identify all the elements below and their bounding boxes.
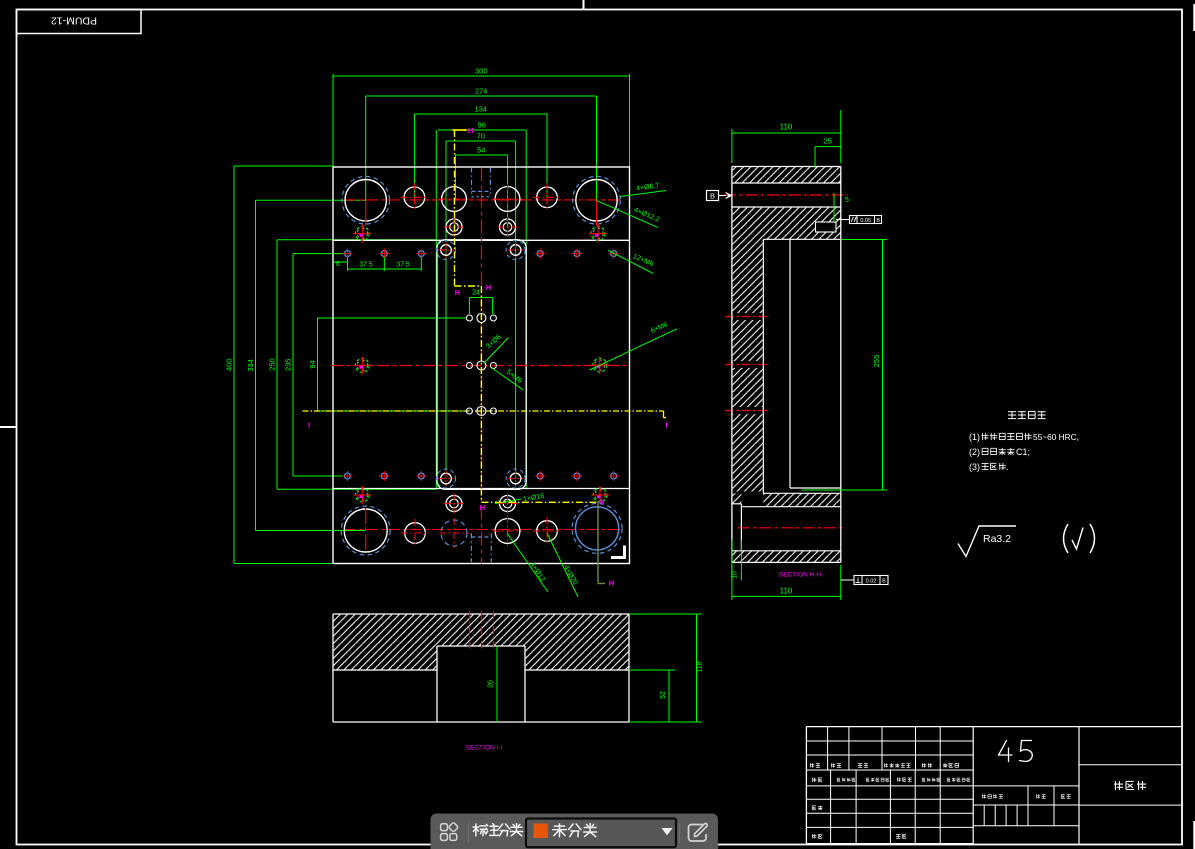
svg-text:110: 110 — [780, 587, 793, 596]
svg-text:400: 400 — [225, 358, 234, 371]
svg-text:Ra3.2: Ra3.2 — [983, 533, 1011, 545]
svg-text:235: 235 — [284, 359, 293, 372]
svg-text:H: H — [599, 500, 604, 507]
svg-text:55~60 HRC,: 55~60 HRC, — [1033, 432, 1079, 442]
svg-text:52: 52 — [660, 691, 667, 699]
svg-text:C1;: C1; — [1016, 447, 1030, 457]
svg-text:0.05: 0.05 — [860, 218, 871, 224]
svg-text:37.5: 37.5 — [359, 262, 373, 269]
svg-text:H: H — [480, 503, 485, 512]
svg-text:94: 94 — [308, 360, 317, 368]
svg-text:25: 25 — [823, 137, 831, 146]
svg-text:274: 274 — [475, 87, 488, 96]
svg-text:.: . — [1006, 462, 1009, 472]
svg-text:70: 70 — [477, 132, 485, 141]
svg-text:I: I — [665, 421, 667, 430]
svg-text:PDUM-12: PDUM-12 — [51, 15, 97, 27]
svg-text:B: B — [710, 192, 715, 201]
svg-text:(3): (3) — [969, 462, 980, 472]
svg-text:118: 118 — [697, 661, 704, 672]
svg-text:B: B — [882, 578, 886, 584]
svg-text:26: 26 — [488, 680, 495, 688]
svg-text:334: 334 — [246, 359, 255, 372]
svg-text:H: H — [609, 578, 614, 587]
svg-text:300: 300 — [475, 67, 488, 76]
svg-text:B: B — [876, 218, 880, 224]
svg-text:96: 96 — [478, 121, 486, 130]
svg-text:H: H — [486, 283, 491, 292]
svg-text:54: 54 — [477, 146, 485, 155]
svg-text:10: 10 — [732, 571, 739, 579]
svg-text:255: 255 — [872, 355, 881, 368]
svg-text:SECTION I-I: SECTION I-I — [466, 745, 503, 752]
svg-text:5: 5 — [845, 197, 849, 204]
svg-text:I: I — [308, 421, 310, 430]
svg-text:(2): (2) — [969, 447, 980, 457]
svg-text:134: 134 — [474, 105, 487, 114]
svg-text:6: 6 — [336, 261, 340, 268]
svg-text:110: 110 — [780, 123, 793, 132]
svg-text:37.5: 37.5 — [396, 262, 410, 269]
svg-text:H: H — [455, 288, 460, 297]
svg-text:24: 24 — [472, 290, 480, 297]
svg-text:0.02: 0.02 — [866, 578, 877, 584]
svg-text:H: H — [468, 126, 473, 135]
svg-text:SECTION H-H: SECTION H-H — [779, 572, 822, 579]
svg-text:(1): (1) — [969, 432, 980, 442]
svg-text:250: 250 — [268, 358, 277, 371]
